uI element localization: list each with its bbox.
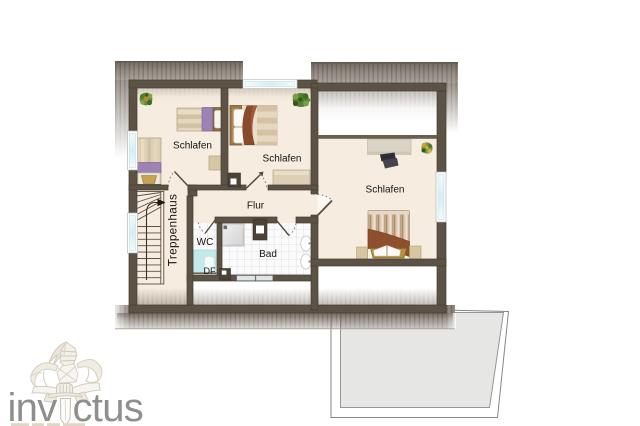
svg-text:Flur: Flur: [247, 201, 265, 212]
svg-text:Schlafen: Schlafen: [173, 141, 212, 152]
svg-text:DF: DF: [204, 266, 216, 276]
svg-text:WC: WC: [197, 237, 214, 248]
svg-text:Schlafen: Schlafen: [366, 185, 405, 196]
svg-text:inv: inv: [8, 386, 58, 426]
svg-text:Bad: Bad: [259, 249, 277, 260]
svg-text:ctus: ctus: [73, 386, 144, 426]
svg-text:Treppenhaus: Treppenhaus: [166, 194, 180, 266]
svg-text:Schlafen: Schlafen: [263, 154, 302, 165]
